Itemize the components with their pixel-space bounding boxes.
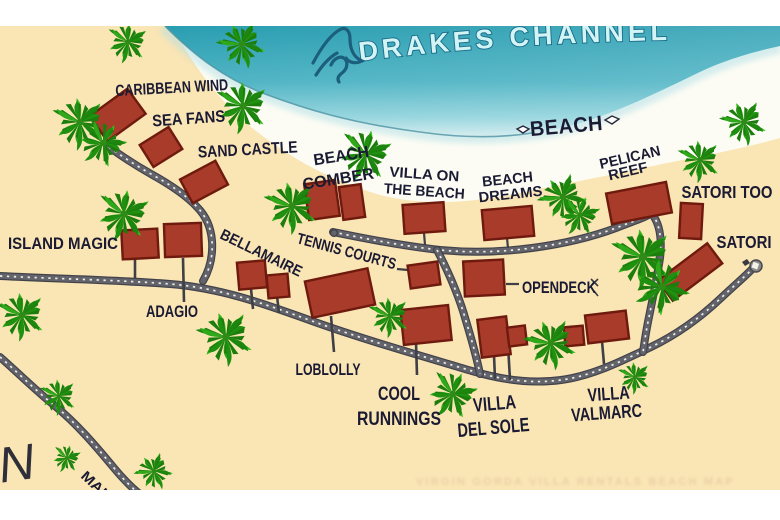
svg-text:RUNNINGS: RUNNINGS xyxy=(357,408,441,430)
svg-text:COOL: COOL xyxy=(378,383,420,405)
svg-text:SATORI: SATORI xyxy=(717,232,772,252)
svg-text:SATORI TOO: SATORI TOO xyxy=(682,182,773,202)
svg-text:VIRGIN GORDA VILLA RENTALS BEA: VIRGIN GORDA VILLA RENTALS BEACH MAP xyxy=(416,476,735,488)
svg-text:LOBLOLLY: LOBLOLLY xyxy=(296,361,361,379)
svg-text:OPENDECK: OPENDECK xyxy=(522,279,596,297)
svg-text:VILLA: VILLA xyxy=(472,391,517,417)
svg-text:ISLAND MAGIC: ISLAND MAGIC xyxy=(8,235,118,253)
svg-text:ADAGIO: ADAGIO xyxy=(146,302,198,321)
